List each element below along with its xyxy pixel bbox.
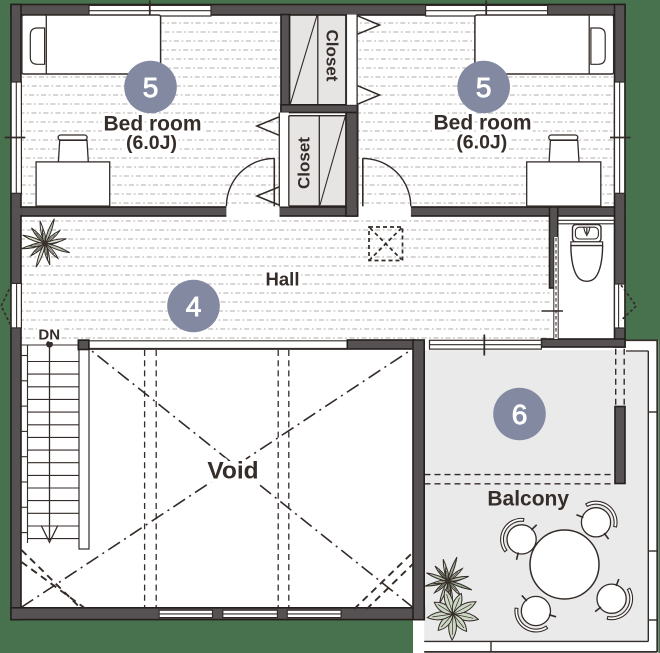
svg-text:Balcony: Balcony [487, 488, 569, 511]
svg-text:6: 6 [512, 399, 528, 430]
svg-text:5: 5 [476, 72, 492, 103]
svg-text:4: 4 [186, 291, 202, 322]
svg-text:(6.0J): (6.0J) [126, 132, 177, 154]
svg-text:Hall: Hall [266, 269, 300, 290]
svg-text:5: 5 [143, 72, 159, 103]
svg-text:Void: Void [207, 458, 258, 485]
svg-text:DN: DN [38, 327, 60, 344]
svg-text:(6.0J): (6.0J) [456, 132, 507, 154]
svg-text:Closet: Closet [295, 137, 314, 189]
svg-text:Closet: Closet [323, 30, 342, 82]
